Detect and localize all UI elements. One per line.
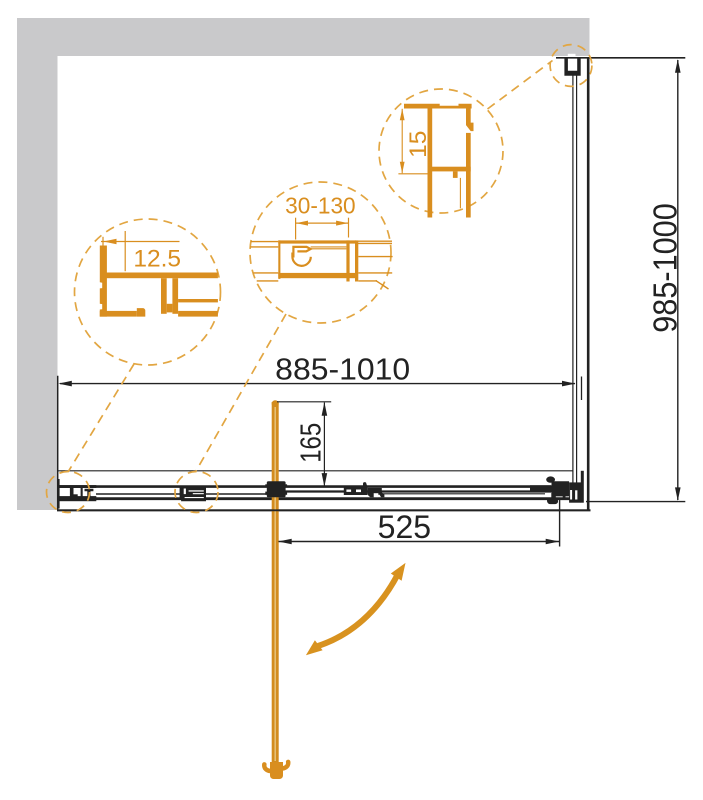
svg-text:30-130: 30-130: [285, 193, 356, 219]
svg-text:12.5: 12.5: [133, 246, 181, 273]
svg-text:885-1010: 885-1010: [275, 353, 410, 387]
svg-text:525: 525: [378, 509, 432, 545]
svg-text:985-1000: 985-1000: [647, 203, 684, 333]
svg-text:15: 15: [405, 131, 432, 158]
svg-text:165: 165: [296, 423, 328, 463]
